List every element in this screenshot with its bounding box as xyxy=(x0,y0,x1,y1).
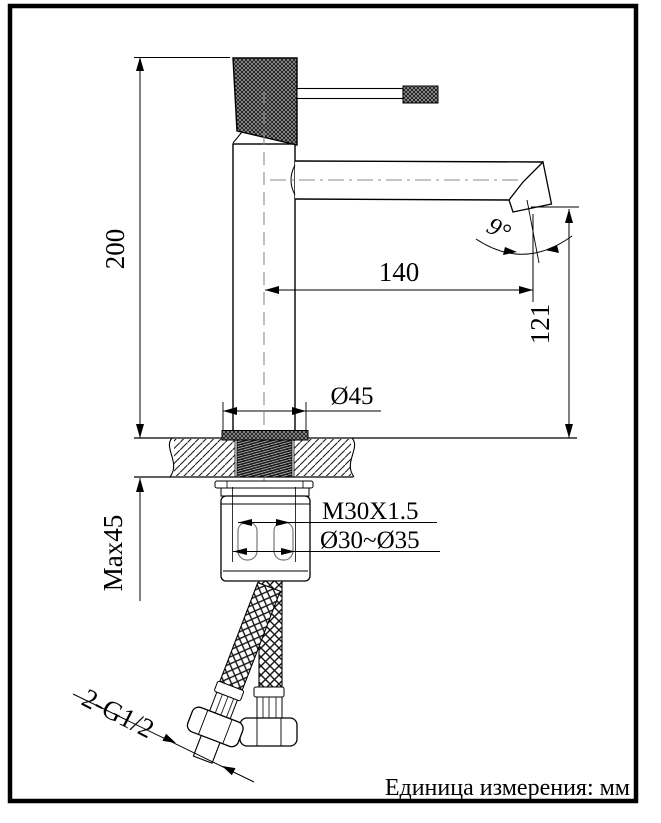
unit-note: Единица измерения: мм xyxy=(385,775,630,801)
deck-hatch-left xyxy=(174,439,235,476)
threaded-shank xyxy=(237,440,292,477)
nut-ear-left xyxy=(238,522,257,560)
arrowhead-down xyxy=(136,424,144,438)
dim-label-max45: Max45 xyxy=(98,515,128,592)
sheet-border-frame xyxy=(10,6,636,801)
countertop-section xyxy=(134,438,577,477)
hose-hex-nut-vertical xyxy=(240,718,297,746)
arrowhead-up xyxy=(565,209,573,223)
deck-break-left xyxy=(169,438,173,477)
mounting-washer xyxy=(215,481,313,488)
arrowhead-up xyxy=(136,478,144,492)
mounting-nut-body xyxy=(221,496,310,581)
dim-max-thickness: Max45 xyxy=(98,478,144,601)
dim-label-140: 140 xyxy=(379,257,420,287)
faucet-body xyxy=(233,144,295,431)
spout-bottom-edge xyxy=(295,199,509,200)
lever-handle xyxy=(297,86,438,103)
technical-drawing-canvas: 200 Max45 140 121 9° Ø45 xyxy=(0,0,661,823)
dim-label-d30-d35: Ø30~Ø35 xyxy=(320,527,420,554)
arc-arrow-right xyxy=(545,245,559,253)
knurled-cap xyxy=(233,58,297,145)
dim-label-200: 200 xyxy=(100,229,130,270)
arrowhead-lower-right xyxy=(163,734,177,743)
dim-label-9deg: 9° xyxy=(482,212,515,246)
dim-label-m30: M30X1.5 xyxy=(322,498,419,525)
mounting-assembly xyxy=(215,481,313,581)
deck-hatch-right xyxy=(294,439,351,476)
base-ring xyxy=(222,431,308,441)
spout-top-edge xyxy=(295,161,543,162)
arrowhead-up xyxy=(136,57,144,71)
dim-label-121: 121 xyxy=(525,304,555,345)
arrowhead-down xyxy=(565,424,573,438)
arrowhead-right xyxy=(292,407,306,415)
dim-overall-height: 200 xyxy=(100,57,230,438)
dim-label-2g12: 2-G1/2 xyxy=(77,683,159,744)
arrowhead-right xyxy=(519,286,533,294)
arrowhead-upper-left xyxy=(222,766,236,775)
handle-grip xyxy=(403,86,438,103)
handle-rod xyxy=(297,89,403,99)
cap-chamfer-line xyxy=(233,132,242,143)
arrowhead-left xyxy=(223,407,237,415)
dim-label-d45: Ø45 xyxy=(330,383,373,410)
hose-collar-vertical xyxy=(254,687,284,697)
drawing-sheet: 200 Max45 140 121 9° Ø45 xyxy=(0,0,661,823)
